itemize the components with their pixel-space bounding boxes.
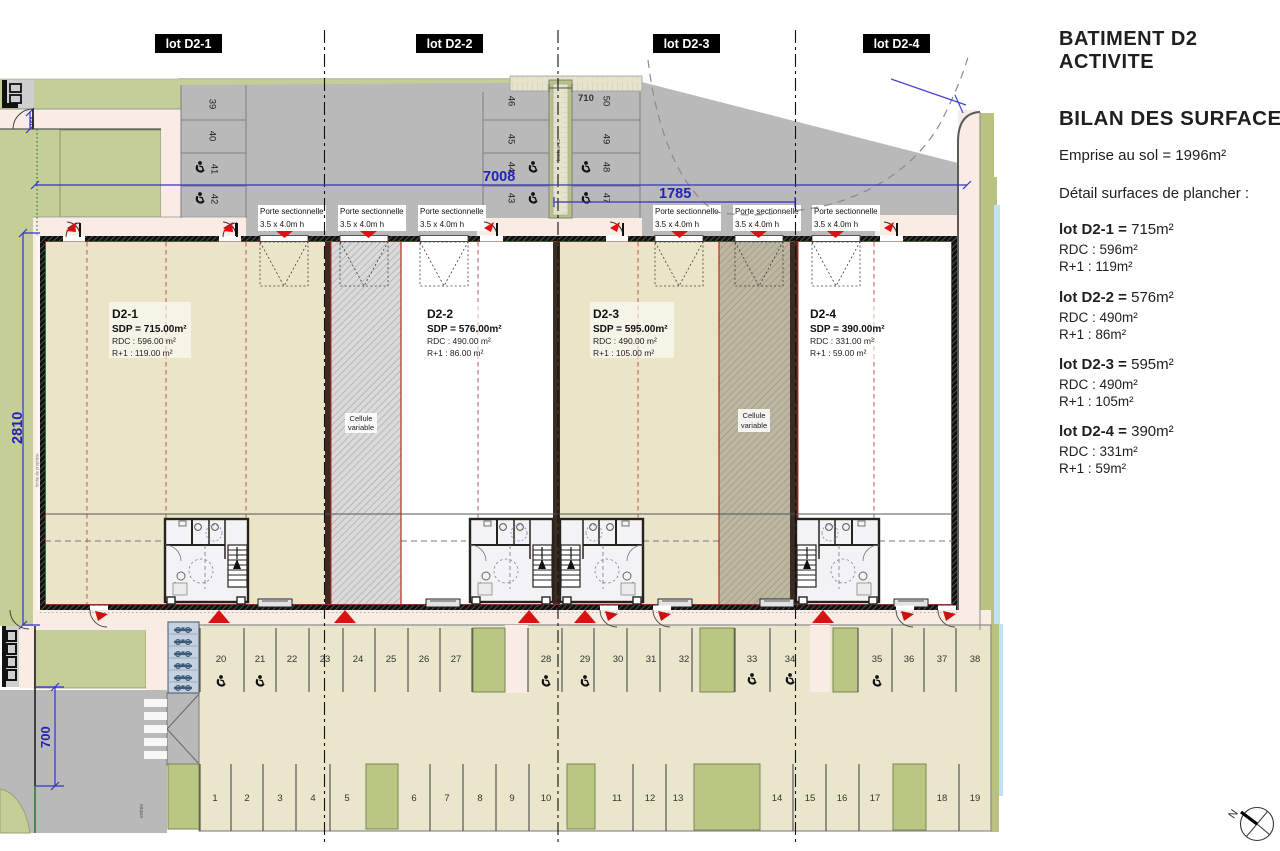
svg-text:3.5 x 4.0m h: 3.5 x 4.0m h <box>340 220 384 229</box>
svg-text:SDP = 576.00m²: SDP = 576.00m² <box>427 324 502 335</box>
svg-text:21: 21 <box>255 654 266 665</box>
svg-text:14: 14 <box>772 793 783 804</box>
svg-text:42: 42 <box>208 194 219 205</box>
svg-text:39: 39 <box>206 99 217 110</box>
svg-text:33: 33 <box>747 654 758 665</box>
svg-text:D2-1: D2-1 <box>112 307 138 321</box>
svg-text:26: 26 <box>419 654 430 665</box>
svg-text:D2-3: D2-3 <box>593 307 619 321</box>
svg-text:R+1 : 59.00 m²: R+1 : 59.00 m² <box>810 348 867 358</box>
svg-text:50: 50 <box>600 96 611 107</box>
svg-text:2810: 2810 <box>10 412 26 444</box>
svg-text:48: 48 <box>600 162 611 173</box>
svg-text:12: 12 <box>645 793 656 804</box>
svg-text:3.5 x 4.0m h: 3.5 x 4.0m h <box>655 220 699 229</box>
svg-text:3.5 x 4.0m h: 3.5 x 4.0m h <box>260 220 304 229</box>
svg-text:28: 28 <box>541 654 552 665</box>
svg-text:41: 41 <box>208 164 219 175</box>
svg-text:3.5 x 4.0m h: 3.5 x 4.0m h <box>814 220 858 229</box>
svg-text:Porte sectionnelle: Porte sectionnelle <box>655 207 719 216</box>
svg-text:27: 27 <box>451 654 462 665</box>
svg-text:RDC : 596.00 m²: RDC : 596.00 m² <box>112 336 176 346</box>
svg-text:SDP = 390.00m²: SDP = 390.00m² <box>810 324 885 335</box>
svg-text:13: 13 <box>673 793 684 804</box>
svg-text:46: 46 <box>505 96 516 107</box>
svg-text:R+1 : 105.00 m²: R+1 : 105.00 m² <box>593 348 654 358</box>
svg-text:16: 16 <box>837 793 848 804</box>
svg-text:4: 4 <box>310 793 315 804</box>
svg-text:lot D2-3: lot D2-3 <box>664 37 710 51</box>
svg-text:18: 18 <box>937 793 948 804</box>
svg-text:lot D2-2: lot D2-2 <box>427 37 473 51</box>
svg-text:32: 32 <box>679 654 690 665</box>
svg-text:Porte sectionnelle: Porte sectionnelle <box>260 207 324 216</box>
svg-text:RDC : 331.00 m²: RDC : 331.00 m² <box>810 336 874 346</box>
svg-text:9: 9 <box>509 793 514 804</box>
svg-text:2: 2 <box>244 793 249 804</box>
svg-text:31: 31 <box>646 654 657 665</box>
svg-text:3: 3 <box>277 793 282 804</box>
svg-text:7: 7 <box>444 793 449 804</box>
svg-text:6: 6 <box>411 793 416 804</box>
svg-text:RDC : 490.00 m²: RDC : 490.00 m² <box>593 336 657 346</box>
svg-text:Porte sectionnelle: Porte sectionnelle <box>420 207 484 216</box>
svg-text:5: 5 <box>344 793 349 804</box>
svg-text:variable: variable <box>348 423 374 432</box>
svg-text:710: 710 <box>578 93 594 104</box>
svg-text:40: 40 <box>206 131 217 142</box>
svg-text:22: 22 <box>287 654 298 665</box>
svg-text:49: 49 <box>600 134 611 145</box>
svg-text:34: 34 <box>785 654 796 665</box>
svg-text:R+1 : 119.00 m²: R+1 : 119.00 m² <box>112 348 173 358</box>
svg-text:limite de propriete: limite de propriete <box>35 453 40 487</box>
svg-text:7008: 7008 <box>483 169 515 185</box>
svg-text:1785: 1785 <box>659 186 691 202</box>
svg-text:29: 29 <box>580 654 591 665</box>
svg-text:R+1 : 86.00 m²: R+1 : 86.00 m² <box>427 348 484 358</box>
svg-text:1: 1 <box>212 793 217 804</box>
svg-text:D2-4: D2-4 <box>810 307 836 321</box>
svg-text:25: 25 <box>386 654 397 665</box>
svg-text:11: 11 <box>612 793 622 804</box>
svg-text:35: 35 <box>872 654 883 665</box>
svg-text:45: 45 <box>505 134 516 145</box>
svg-text:Porte sectionnelle: Porte sectionnelle <box>340 207 404 216</box>
svg-text:SDP = 595.00m²: SDP = 595.00m² <box>593 324 668 335</box>
svg-text:entrée: entrée <box>139 804 145 818</box>
svg-text:38: 38 <box>970 654 981 665</box>
svg-text:variable: variable <box>741 421 767 430</box>
svg-text:19: 19 <box>970 793 981 804</box>
svg-text:lot D2-4: lot D2-4 <box>874 37 920 51</box>
svg-text:20: 20 <box>216 654 227 665</box>
svg-text:43: 43 <box>505 193 516 204</box>
svg-text:37: 37 <box>937 654 948 665</box>
svg-text:15: 15 <box>805 793 816 804</box>
svg-text:30: 30 <box>613 654 624 665</box>
svg-text:10: 10 <box>541 793 552 804</box>
svg-text:Cellule: Cellule <box>350 414 373 423</box>
svg-text:3.5 x 4.0m h: 3.5 x 4.0m h <box>735 220 779 229</box>
svg-text:lot D2-1: lot D2-1 <box>166 37 212 51</box>
svg-text:700: 700 <box>38 726 53 748</box>
svg-text:SDP = 715.00m²: SDP = 715.00m² <box>112 324 187 335</box>
svg-text:17: 17 <box>870 793 881 804</box>
svg-text:RDC : 490.00 m²: RDC : 490.00 m² <box>427 336 491 346</box>
svg-text:24: 24 <box>353 654 364 665</box>
svg-text:3.5 x 4.0m h: 3.5 x 4.0m h <box>420 220 464 229</box>
svg-text:D2-2: D2-2 <box>427 307 453 321</box>
svg-text:8: 8 <box>477 793 482 804</box>
svg-text:Cellule: Cellule <box>743 411 766 420</box>
svg-text:Porte sectionnelle: Porte sectionnelle <box>814 207 878 216</box>
svg-text:36: 36 <box>904 654 915 665</box>
